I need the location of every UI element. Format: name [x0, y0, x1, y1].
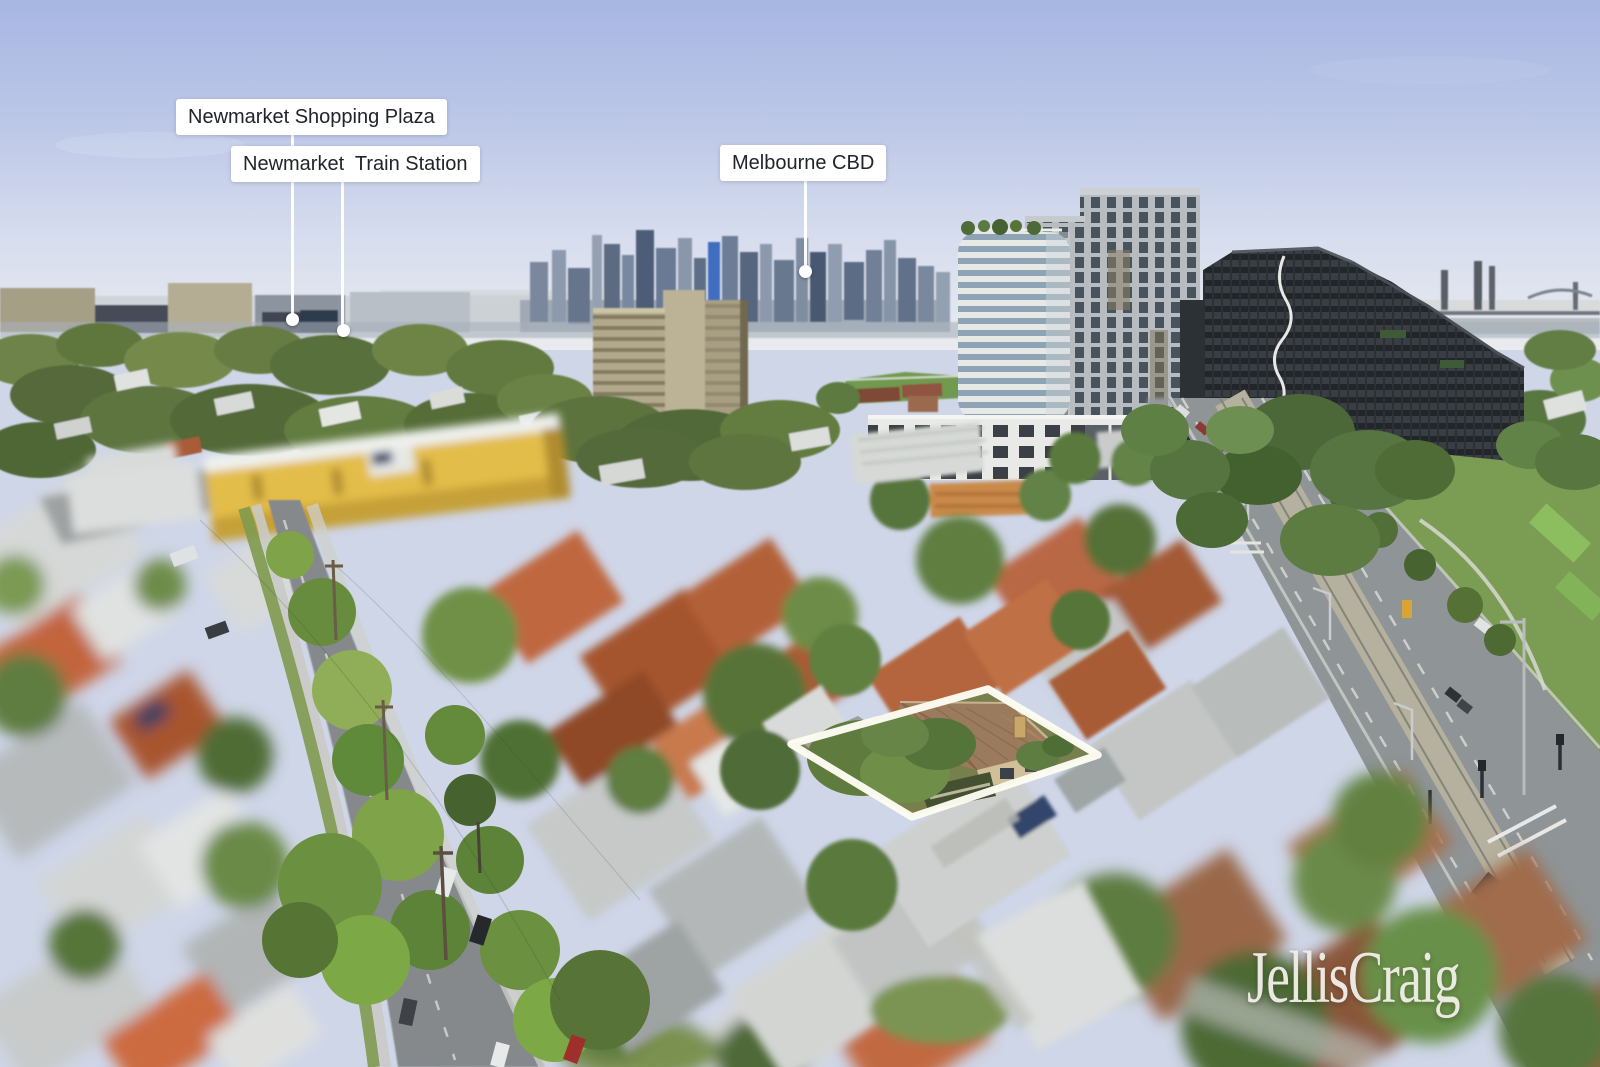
leader-line-melbourne-cbd [804, 180, 807, 270]
playing-field [845, 372, 962, 412]
aerial-photo: Newmarket Shopping Plaza Newmarket Train… [0, 0, 1600, 1067]
leader-line-train-station [341, 181, 344, 329]
white-tower [958, 219, 1070, 420]
marker-dot-train-station [337, 324, 350, 337]
watermark-jellis-craig: JellisCraig [1247, 936, 1459, 1021]
map-label-train-station: Newmarket Train Station [231, 146, 480, 182]
map-label-shopping-plaza: Newmarket Shopping Plaza [176, 99, 447, 135]
map-label-melbourne-cbd: Melbourne CBD [720, 145, 886, 181]
marker-dot-melbourne-cbd [799, 265, 812, 278]
marker-dot-shopping-plaza [286, 313, 299, 326]
property [791, 689, 1098, 817]
